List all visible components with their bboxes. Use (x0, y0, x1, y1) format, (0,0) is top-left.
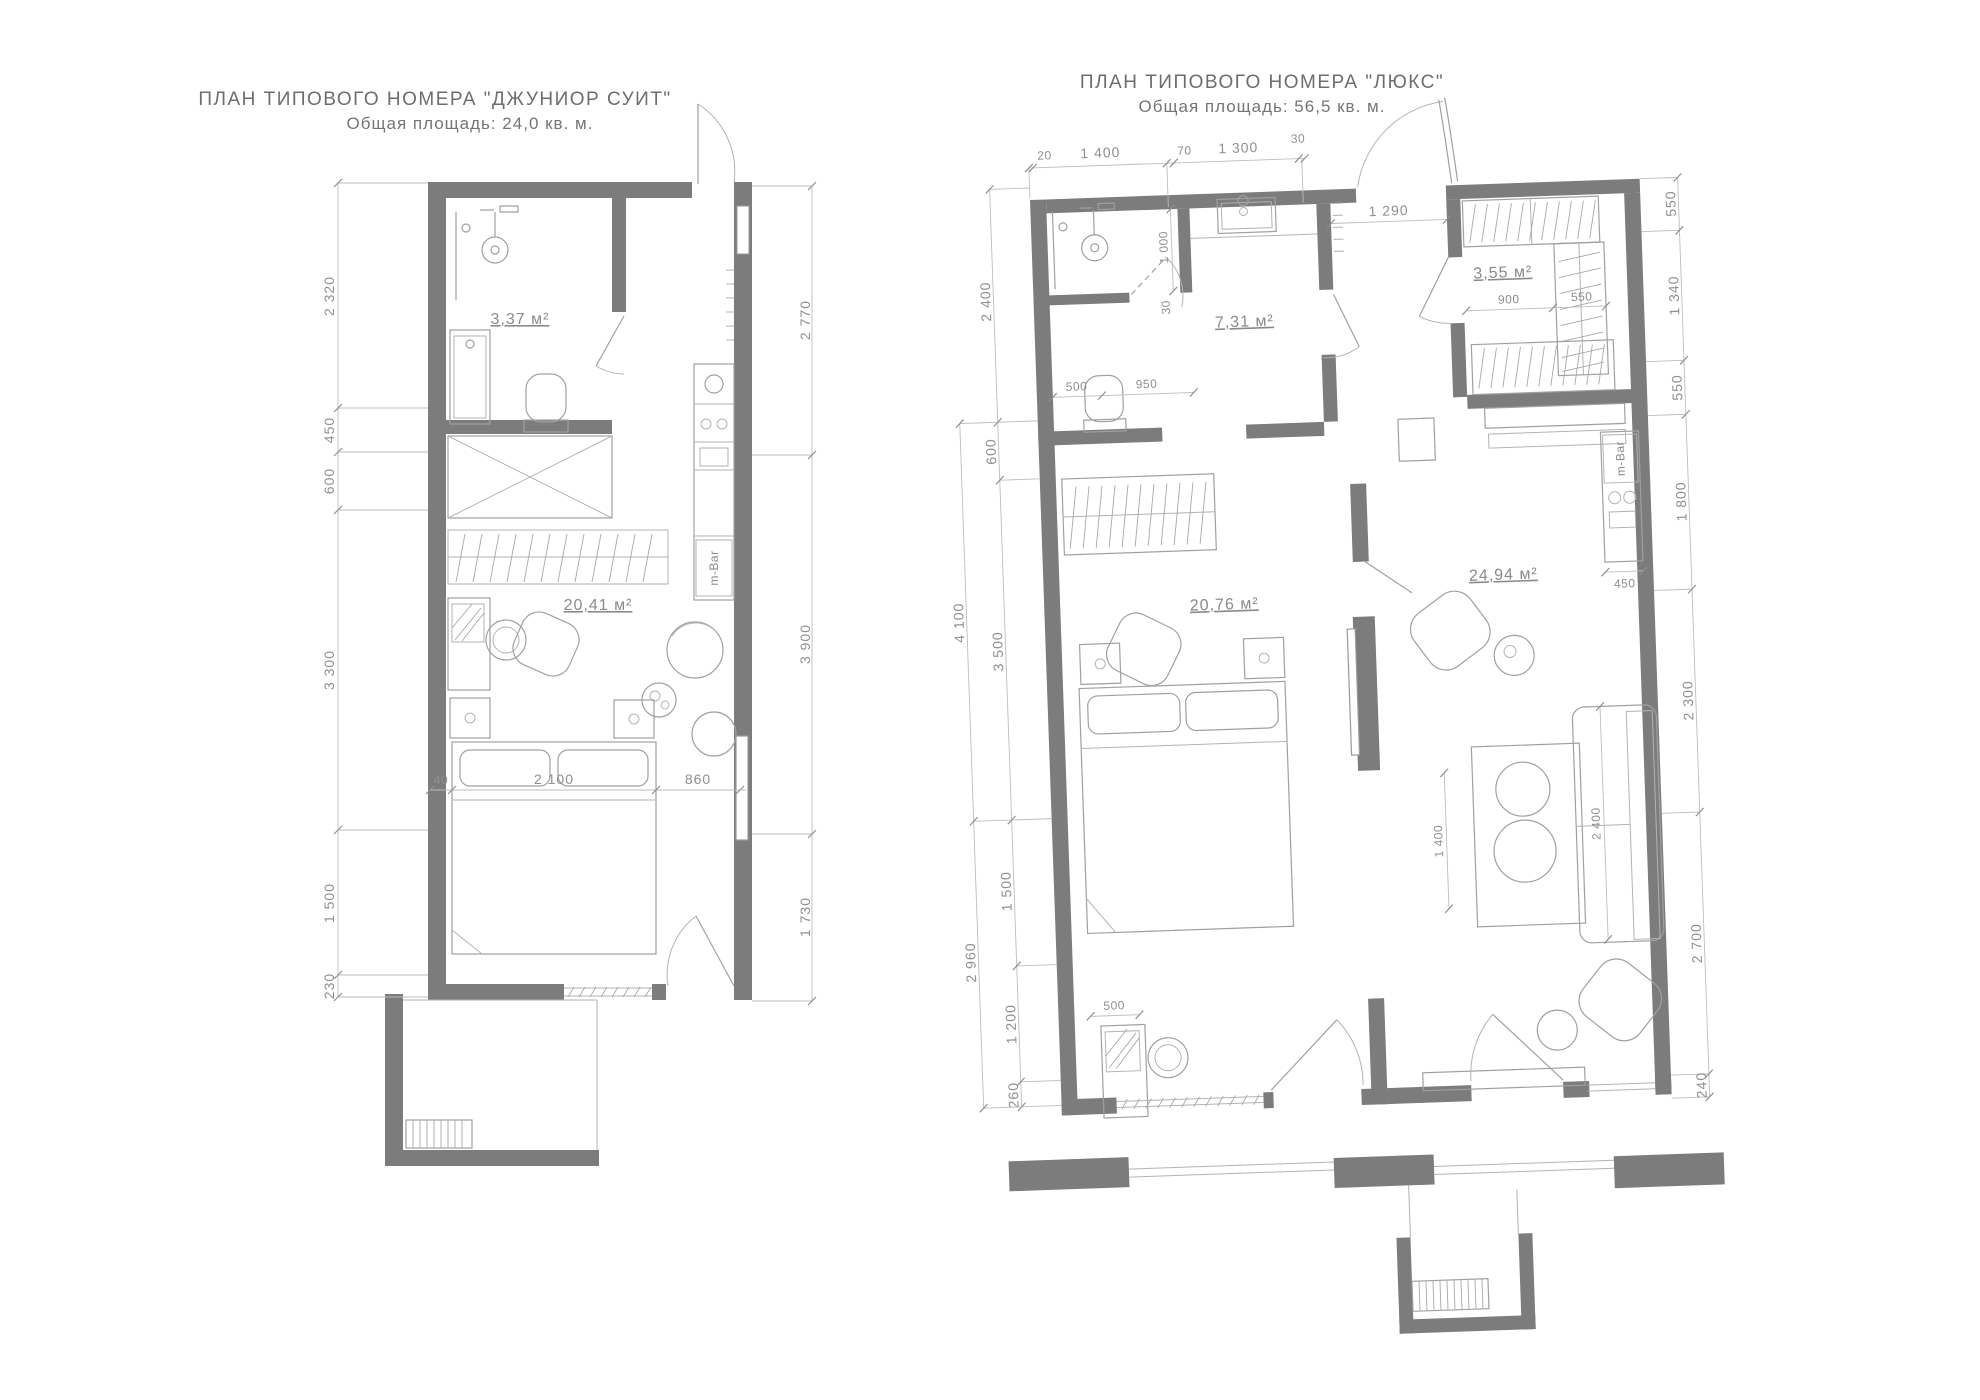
burner-icon (1609, 492, 1621, 504)
junior-suite-minibar-unit: m-Bar (694, 364, 734, 600)
dim-bath-2: 30 (1159, 300, 1173, 315)
minibar-label: m-Bar (1613, 441, 1628, 477)
junior-suite-bathroom: 3,37 м² (450, 206, 624, 432)
wardrobe-area-label: 3,55 м² (1473, 264, 1532, 283)
balcony-door-arc (1337, 1019, 1363, 1086)
dim-top-5: 30 (1291, 131, 1306, 145)
vanity-faucet-icon (466, 340, 474, 348)
armchair (1402, 583, 1498, 678)
laptop-hatch (452, 604, 484, 641)
junior-suite-entry (698, 104, 735, 184)
shower-fittings (480, 206, 518, 237)
balcony-stairs (1412, 1279, 1489, 1312)
pouf (1537, 1009, 1578, 1050)
bedroom-area-label: 20,76 м² (1190, 595, 1259, 614)
dim-top-3: 70 (1177, 143, 1192, 157)
dim-r-1: 550 (1662, 190, 1679, 217)
dim-left-5: 1 500 (321, 883, 337, 923)
dim-right-3: 1 730 (797, 897, 813, 937)
railing (1129, 1162, 1334, 1177)
dim-r-2: 1 340 (1665, 275, 1682, 316)
dim-li-4: 1 500 (997, 871, 1014, 912)
sink-icon (705, 375, 723, 393)
toilet-bowl (526, 374, 566, 422)
nightstand-lamp (465, 713, 475, 723)
balcony-outline (403, 1000, 597, 1150)
junior-suite-title: ПЛАН ТИПОВОГО НОМЕРА "ДЖУНИОР СУИТ" (198, 89, 671, 110)
living-door-leaf (1365, 560, 1412, 595)
stairs-comb (1419, 1279, 1483, 1311)
floor-plan-drawing: ПЛАН ТИПОВОГО НОМЕРА "ДЖУНИОР СУИТ" Обща… (0, 0, 1980, 1400)
right-wall-window-slot (737, 206, 749, 254)
junior-suite-balcony (403, 1000, 597, 1150)
nightstand-lamp (1259, 653, 1269, 663)
wardrobe-hatch-top (1468, 200, 1596, 242)
living-area-label: 24,94 м² (1469, 566, 1538, 585)
dim-left-2: 450 (321, 417, 337, 443)
dim-inner-3: 860 (685, 771, 711, 787)
bathroom-area-label: 7,31 м² (1215, 313, 1274, 332)
kitchen-shelf-lines (694, 404, 734, 536)
balcony-door-leaf (1269, 1020, 1339, 1090)
round-pillow (1493, 819, 1557, 883)
dim-entry: 1 290 (1368, 202, 1409, 219)
wall-vent-ticks (726, 270, 734, 340)
balcony-door-arc (667, 916, 696, 986)
dim-r-6: 2 700 (1688, 923, 1705, 964)
burner-icon (701, 419, 711, 429)
junior-suite-openings (564, 916, 734, 997)
entry-door-leaf (1439, 97, 1458, 184)
bathroom-door-leaf (596, 316, 624, 366)
pillow (1185, 690, 1278, 731)
lux-bedroom: 20,76 м² 500 (1062, 469, 1372, 1119)
round-pillow (1495, 761, 1551, 817)
vanity-drain (1239, 207, 1247, 215)
dim-living-2: 2 400 (1589, 807, 1604, 840)
bed-blanket-lines (452, 800, 656, 954)
junior-suite-walls (385, 182, 752, 1166)
shower-valve (462, 224, 470, 232)
dim-bath-4: 950 (1135, 377, 1157, 392)
lux-living: 24,94 м² 2 400 1 400 (1401, 561, 1673, 1091)
nightstand-lamp (1095, 659, 1105, 669)
desk-chair (1147, 1037, 1188, 1078)
dim-bath-1: 1 000 (1156, 231, 1171, 264)
shower-drain (1091, 244, 1099, 252)
floor-plan-sheet: ПЛАН ТИПОВОГО НОМЕРА "ДЖУНИОР СУИТ" Обща… (0, 0, 1980, 1400)
dim-r-3: 550 (1668, 374, 1685, 401)
lux-title: ПЛАН ТИПОВОГО НОМЕРА "ЛЮКС" (1080, 72, 1444, 93)
table-decor (1504, 645, 1516, 657)
corridor-window-ticks (1332, 203, 1344, 251)
appliance-box (700, 448, 728, 466)
lux-wardrobe: 3,55 м² 900 550 (1415, 196, 1626, 451)
dim-inner-1: 40 (434, 773, 448, 787)
dim-top-1: 20 (1037, 148, 1052, 162)
lux-bathroom: 7,31 м² 1 000 30 500 950 (1042, 192, 1362, 434)
junior-suite-subtitle: Общая площадь: 24,0 кв. м. (347, 114, 594, 133)
terrace-connectors (1409, 1182, 1519, 1238)
nightstand-lamp (629, 714, 639, 724)
lux-plan: 1 290 7,31 м² 1 000 30 (933, 89, 1730, 1349)
vanity (450, 330, 490, 424)
pillow (1087, 693, 1180, 734)
pouf (692, 712, 736, 756)
dim-r-5: 2 300 (1679, 680, 1696, 721)
dim-wardrobe-1: 900 (1498, 292, 1520, 307)
closet-hatch (1068, 482, 1208, 549)
toilet-bowl (1084, 375, 1124, 422)
junior-suite-closets (448, 436, 668, 584)
bathroom-area-label: 3,37 м² (491, 311, 550, 328)
dim-left-6: 230 (321, 973, 337, 999)
shower-head (1081, 234, 1108, 261)
entry-door-arc (698, 104, 735, 182)
nightstand (450, 698, 490, 738)
window-sill (1587, 1083, 1655, 1091)
shower-drain (491, 246, 499, 254)
burner-icon (1624, 491, 1636, 503)
wardrobe-door-leaf (1417, 257, 1450, 316)
wardrobe-hatch (456, 534, 652, 582)
stairs-comb (413, 1120, 462, 1148)
rug (1471, 743, 1585, 927)
laptop-hatch (1105, 1029, 1140, 1069)
dim-r-7: 240 (1693, 1072, 1710, 1099)
desk-chair-seat (1155, 1044, 1182, 1071)
appliance-box (1609, 511, 1636, 528)
bathroom-door-arc (596, 366, 624, 374)
wardrobe-bottom-shelf (1471, 340, 1615, 395)
shower-valve (1059, 223, 1067, 231)
minibar-label: m-Bar (707, 550, 721, 585)
railing (1434, 1160, 1614, 1174)
dim-lo-2: 2 960 (962, 942, 979, 983)
side-table-decor (661, 701, 669, 709)
burner-icon (717, 419, 727, 429)
dim-left-4: 3 300 (321, 650, 337, 690)
dim-left-3: 600 (321, 468, 337, 494)
dim-living-1: 1 400 (1431, 825, 1446, 858)
bed-blanket-lines (1081, 741, 1293, 933)
dim-left-1: 2 320 (321, 276, 337, 316)
bathroom-door-leaf (1333, 294, 1359, 348)
dim-right-1: 2 770 (797, 300, 813, 340)
hall-console (1398, 418, 1435, 461)
dim-li-3: 3 500 (989, 631, 1006, 672)
round-armchair-back (672, 623, 718, 636)
room-area-label: 20,41 м² (564, 597, 633, 614)
dim-li-6: 260 (1005, 1082, 1022, 1109)
armchair (1101, 607, 1187, 692)
dim-wardrobe-2: 550 (1571, 289, 1593, 304)
dim-li-5: 1 200 (1002, 1004, 1019, 1045)
console (1485, 403, 1626, 428)
counter-edge (1190, 234, 1317, 238)
dim-top-2: 1 400 (1080, 144, 1121, 161)
lux-entry: 1 290 (1323, 97, 1459, 228)
shower-glass (1052, 211, 1055, 289)
balcony-door-leaf (1493, 1012, 1563, 1082)
shower-head (482, 237, 508, 263)
dim-li-1: 2 400 (977, 281, 994, 322)
balcony-door-leaf (696, 916, 734, 986)
dim-bath-3: 500 (1066, 379, 1088, 394)
junior-suite-plan: ПЛАН ТИПОВОГО НОМЕРА "ДЖУНИОР СУИТ" Обща… (198, 89, 816, 1166)
dim-top-4: 1 300 (1218, 139, 1259, 156)
nightstand (1243, 637, 1284, 678)
dim-inner-2: 2 100 (534, 771, 574, 787)
dim-r-4: 1 800 (1672, 481, 1689, 522)
dim-li-2: 600 (982, 438, 999, 465)
closet-cross (448, 436, 612, 518)
lux-subtitle: Общая площадь: 56,5 кв. м. (1139, 97, 1386, 116)
wardrobe-door-arc (1419, 315, 1450, 324)
nightstand (1080, 643, 1121, 684)
dim-desk: 500 (1103, 998, 1125, 1013)
dim-right-2: 3 900 (797, 624, 813, 664)
window-sill (1117, 1096, 1264, 1107)
dim-minibar: 450 (1614, 576, 1636, 591)
nightstand (614, 700, 654, 738)
desk-chair (486, 620, 526, 660)
lux-terrace (1009, 1136, 1730, 1347)
dim-lo-1: 4 100 (950, 602, 967, 643)
